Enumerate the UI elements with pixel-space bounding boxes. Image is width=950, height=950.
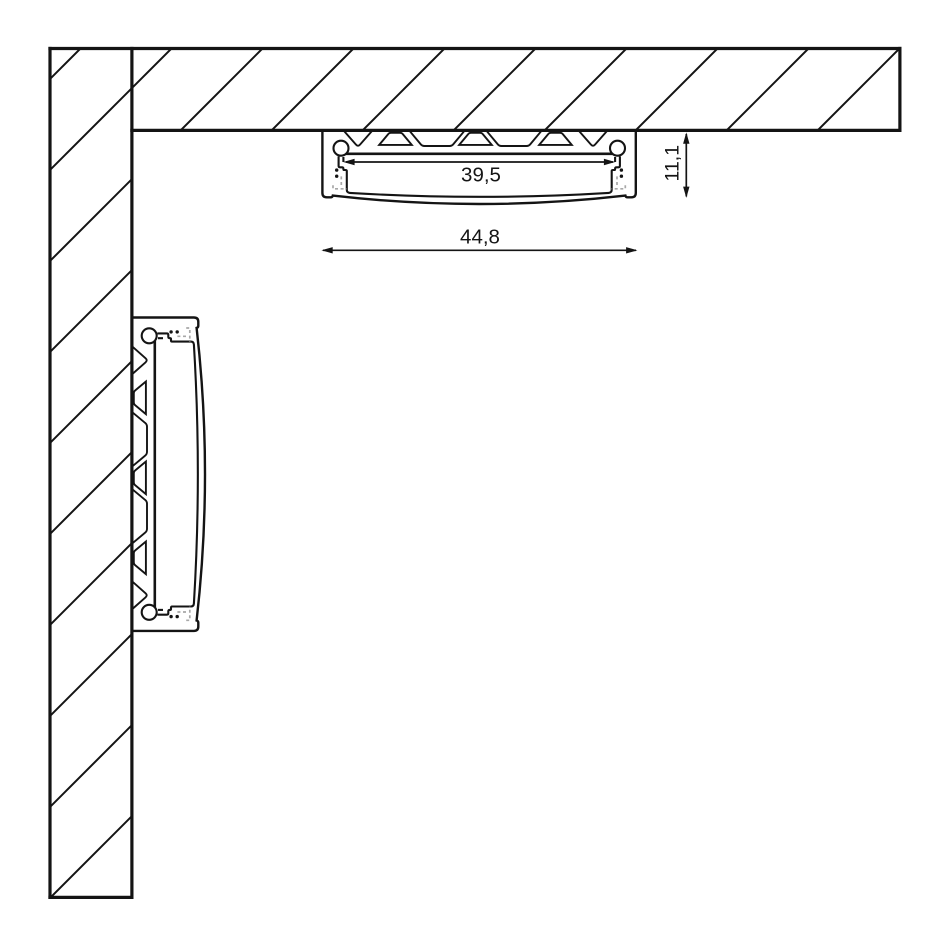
svg-text:44,8: 44,8	[460, 226, 500, 249]
svg-text:39,5: 39,5	[461, 163, 501, 186]
svg-text:11,1: 11,1	[662, 145, 684, 182]
